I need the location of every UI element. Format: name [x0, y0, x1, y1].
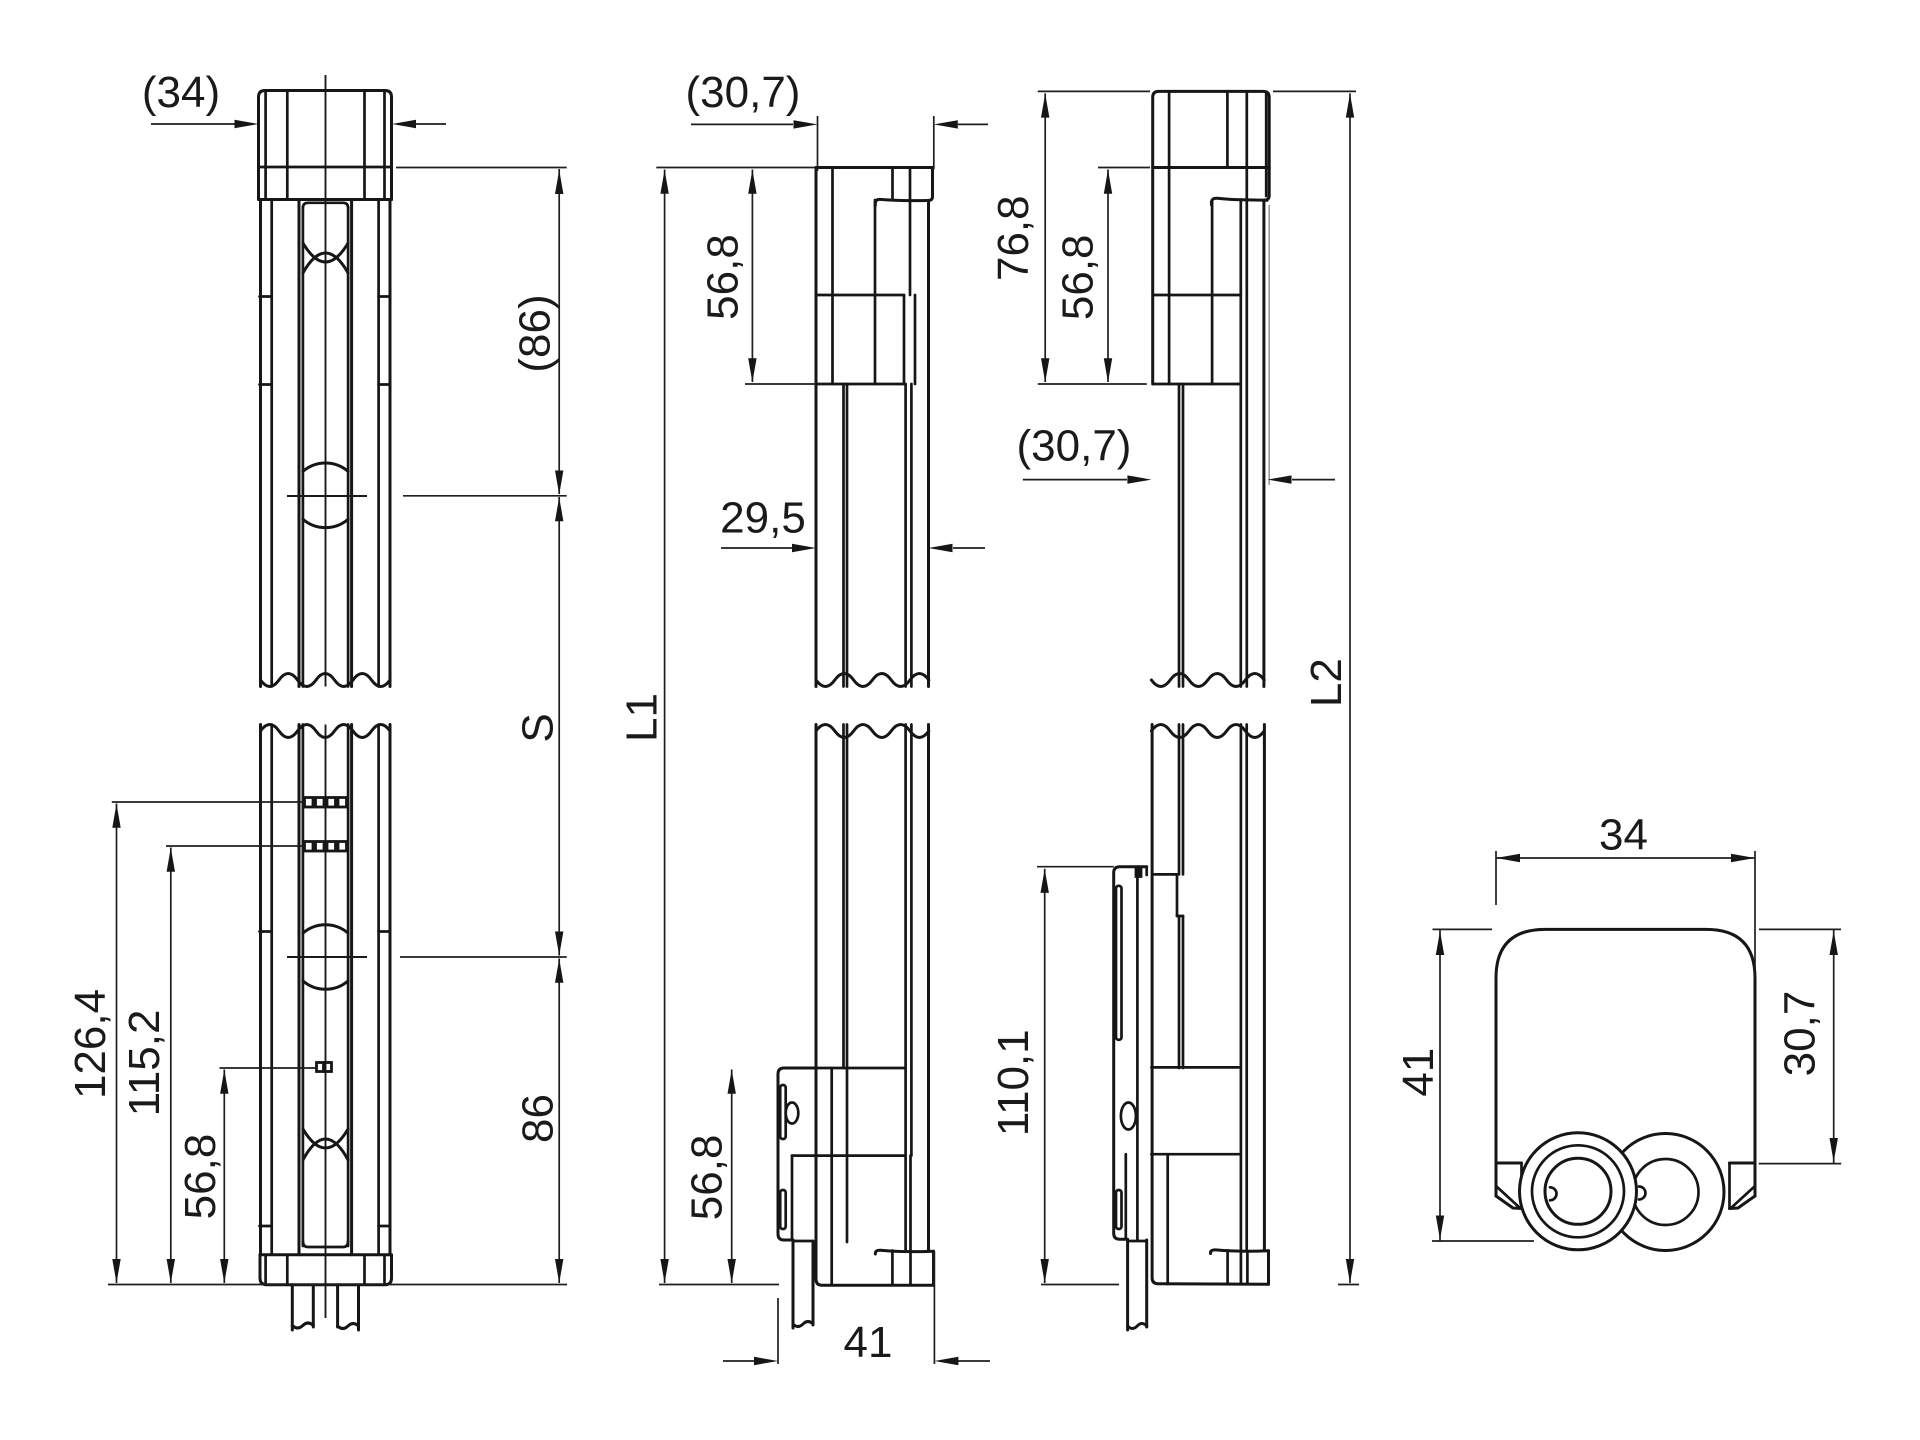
svg-text:(34): (34) — [142, 68, 220, 117]
svg-text:29,5: 29,5 — [720, 494, 806, 543]
svg-text:30,7: 30,7 — [1776, 991, 1825, 1077]
svg-text:76,8: 76,8 — [989, 195, 1038, 281]
svg-text:L1: L1 — [617, 693, 666, 742]
svg-text:56,8: 56,8 — [683, 1135, 732, 1221]
svg-text:L2: L2 — [1302, 658, 1351, 707]
svg-text:86: 86 — [514, 1094, 563, 1143]
svg-text:56,8: 56,8 — [698, 234, 747, 320]
svg-text:110,1: 110,1 — [989, 1029, 1038, 1136]
svg-text:126,4: 126,4 — [66, 989, 115, 1099]
svg-text:56,8: 56,8 — [176, 1134, 225, 1220]
svg-text:41: 41 — [1394, 1048, 1443, 1097]
svg-text:115,2: 115,2 — [120, 1010, 169, 1117]
svg-text:(86): (86) — [511, 294, 560, 372]
svg-text:41: 41 — [844, 1318, 893, 1367]
svg-text:(30,7): (30,7) — [1017, 422, 1132, 471]
svg-text:34: 34 — [1599, 811, 1648, 860]
svg-text:56,8: 56,8 — [1054, 234, 1103, 320]
svg-text:S: S — [514, 713, 563, 742]
svg-text:(30,7): (30,7) — [686, 68, 801, 117]
